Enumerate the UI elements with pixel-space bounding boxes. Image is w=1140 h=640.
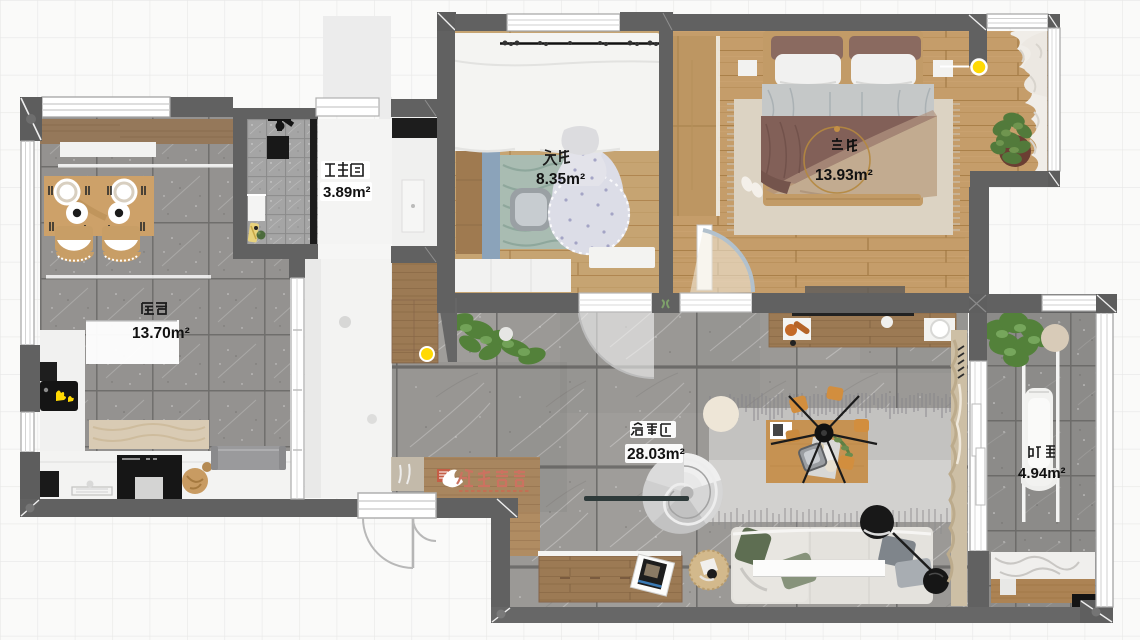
svg-text:13.70m²: 13.70m²	[132, 325, 190, 342]
svg-text:4.94m²: 4.94m²	[1018, 465, 1066, 482]
svg-text:13.93m²: 13.93m²	[815, 167, 873, 184]
svg-text:8.35m²: 8.35m²	[536, 171, 585, 188]
svg-text:3.89m²: 3.89m²	[323, 184, 371, 201]
svg-text:28.03m²: 28.03m²	[627, 446, 685, 463]
